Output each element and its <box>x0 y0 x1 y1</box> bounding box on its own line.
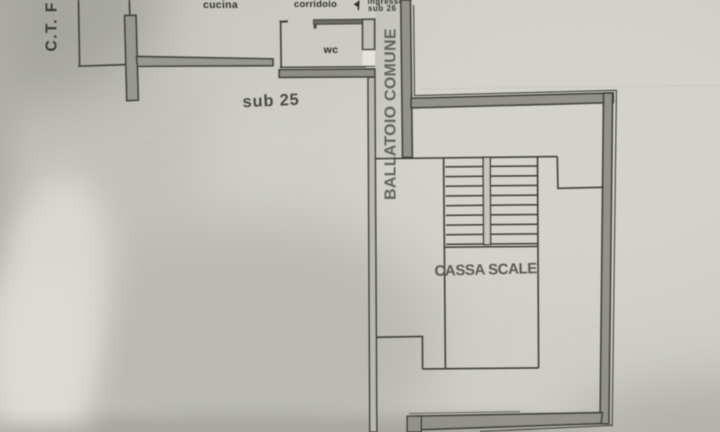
svg-text:C.T. F: C.T. F <box>44 1 61 51</box>
svg-text:BALLATOIO COMUNE: BALLATOIO COMUNE <box>383 28 400 200</box>
svg-text:cucina: cucina <box>203 0 238 11</box>
svg-text:wc: wc <box>323 44 339 56</box>
svg-text:CASSA SCALE: CASSA SCALE <box>434 260 538 280</box>
svg-text:corridoio: corridoio <box>294 0 337 10</box>
svg-text:sub 25: sub 25 <box>242 91 300 111</box>
